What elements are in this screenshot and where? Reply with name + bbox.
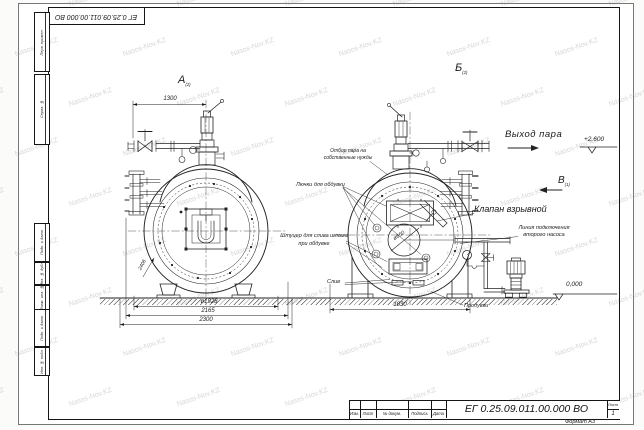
tb-col-podpis: Подпись: [408, 411, 431, 416]
margin-box-vzam-inv: Взам. инв. №: [34, 285, 50, 310]
margin-box-inv-dubl: Инв. № дубл.: [34, 262, 50, 285]
margin-box-inv-podl: Инв. № подл.: [34, 347, 50, 376]
scanned-drawing-sheet: { "sheet": { "corner_stamp": "ЕГ 0.25.09…: [0, 0, 644, 430]
margin-box-podp-data-2: Подп. и дата: [34, 309, 50, 347]
tb-col-dokum: № докум.: [376, 411, 408, 416]
drawing-frame: [48, 7, 620, 420]
tb-col-izm: Изм.: [349, 411, 360, 416]
margin-box-podp-data-1: Подп. и дата: [34, 223, 50, 262]
margin-box-perv-primen: Перв. примен.: [34, 12, 50, 72]
tb-col-data: Дата: [431, 411, 446, 416]
document-number: ЕГ 0.25.09.011.00.000 ВО: [446, 400, 607, 418]
sheet-count-label: Лист: [607, 402, 619, 407]
margin-box-sprav-no: Справ. №: [34, 74, 50, 145]
corner-stamp-text: ЕГ 0.25.09.011.00.000 ВО: [55, 13, 137, 20]
tb-col-list: Лист: [360, 411, 376, 416]
sheet-number: 1: [607, 411, 619, 417]
format-note: Формат А3: [552, 419, 608, 425]
corner-stamp: ЕГ 0.25.09.011.00.000 ВО: [48, 7, 145, 25]
